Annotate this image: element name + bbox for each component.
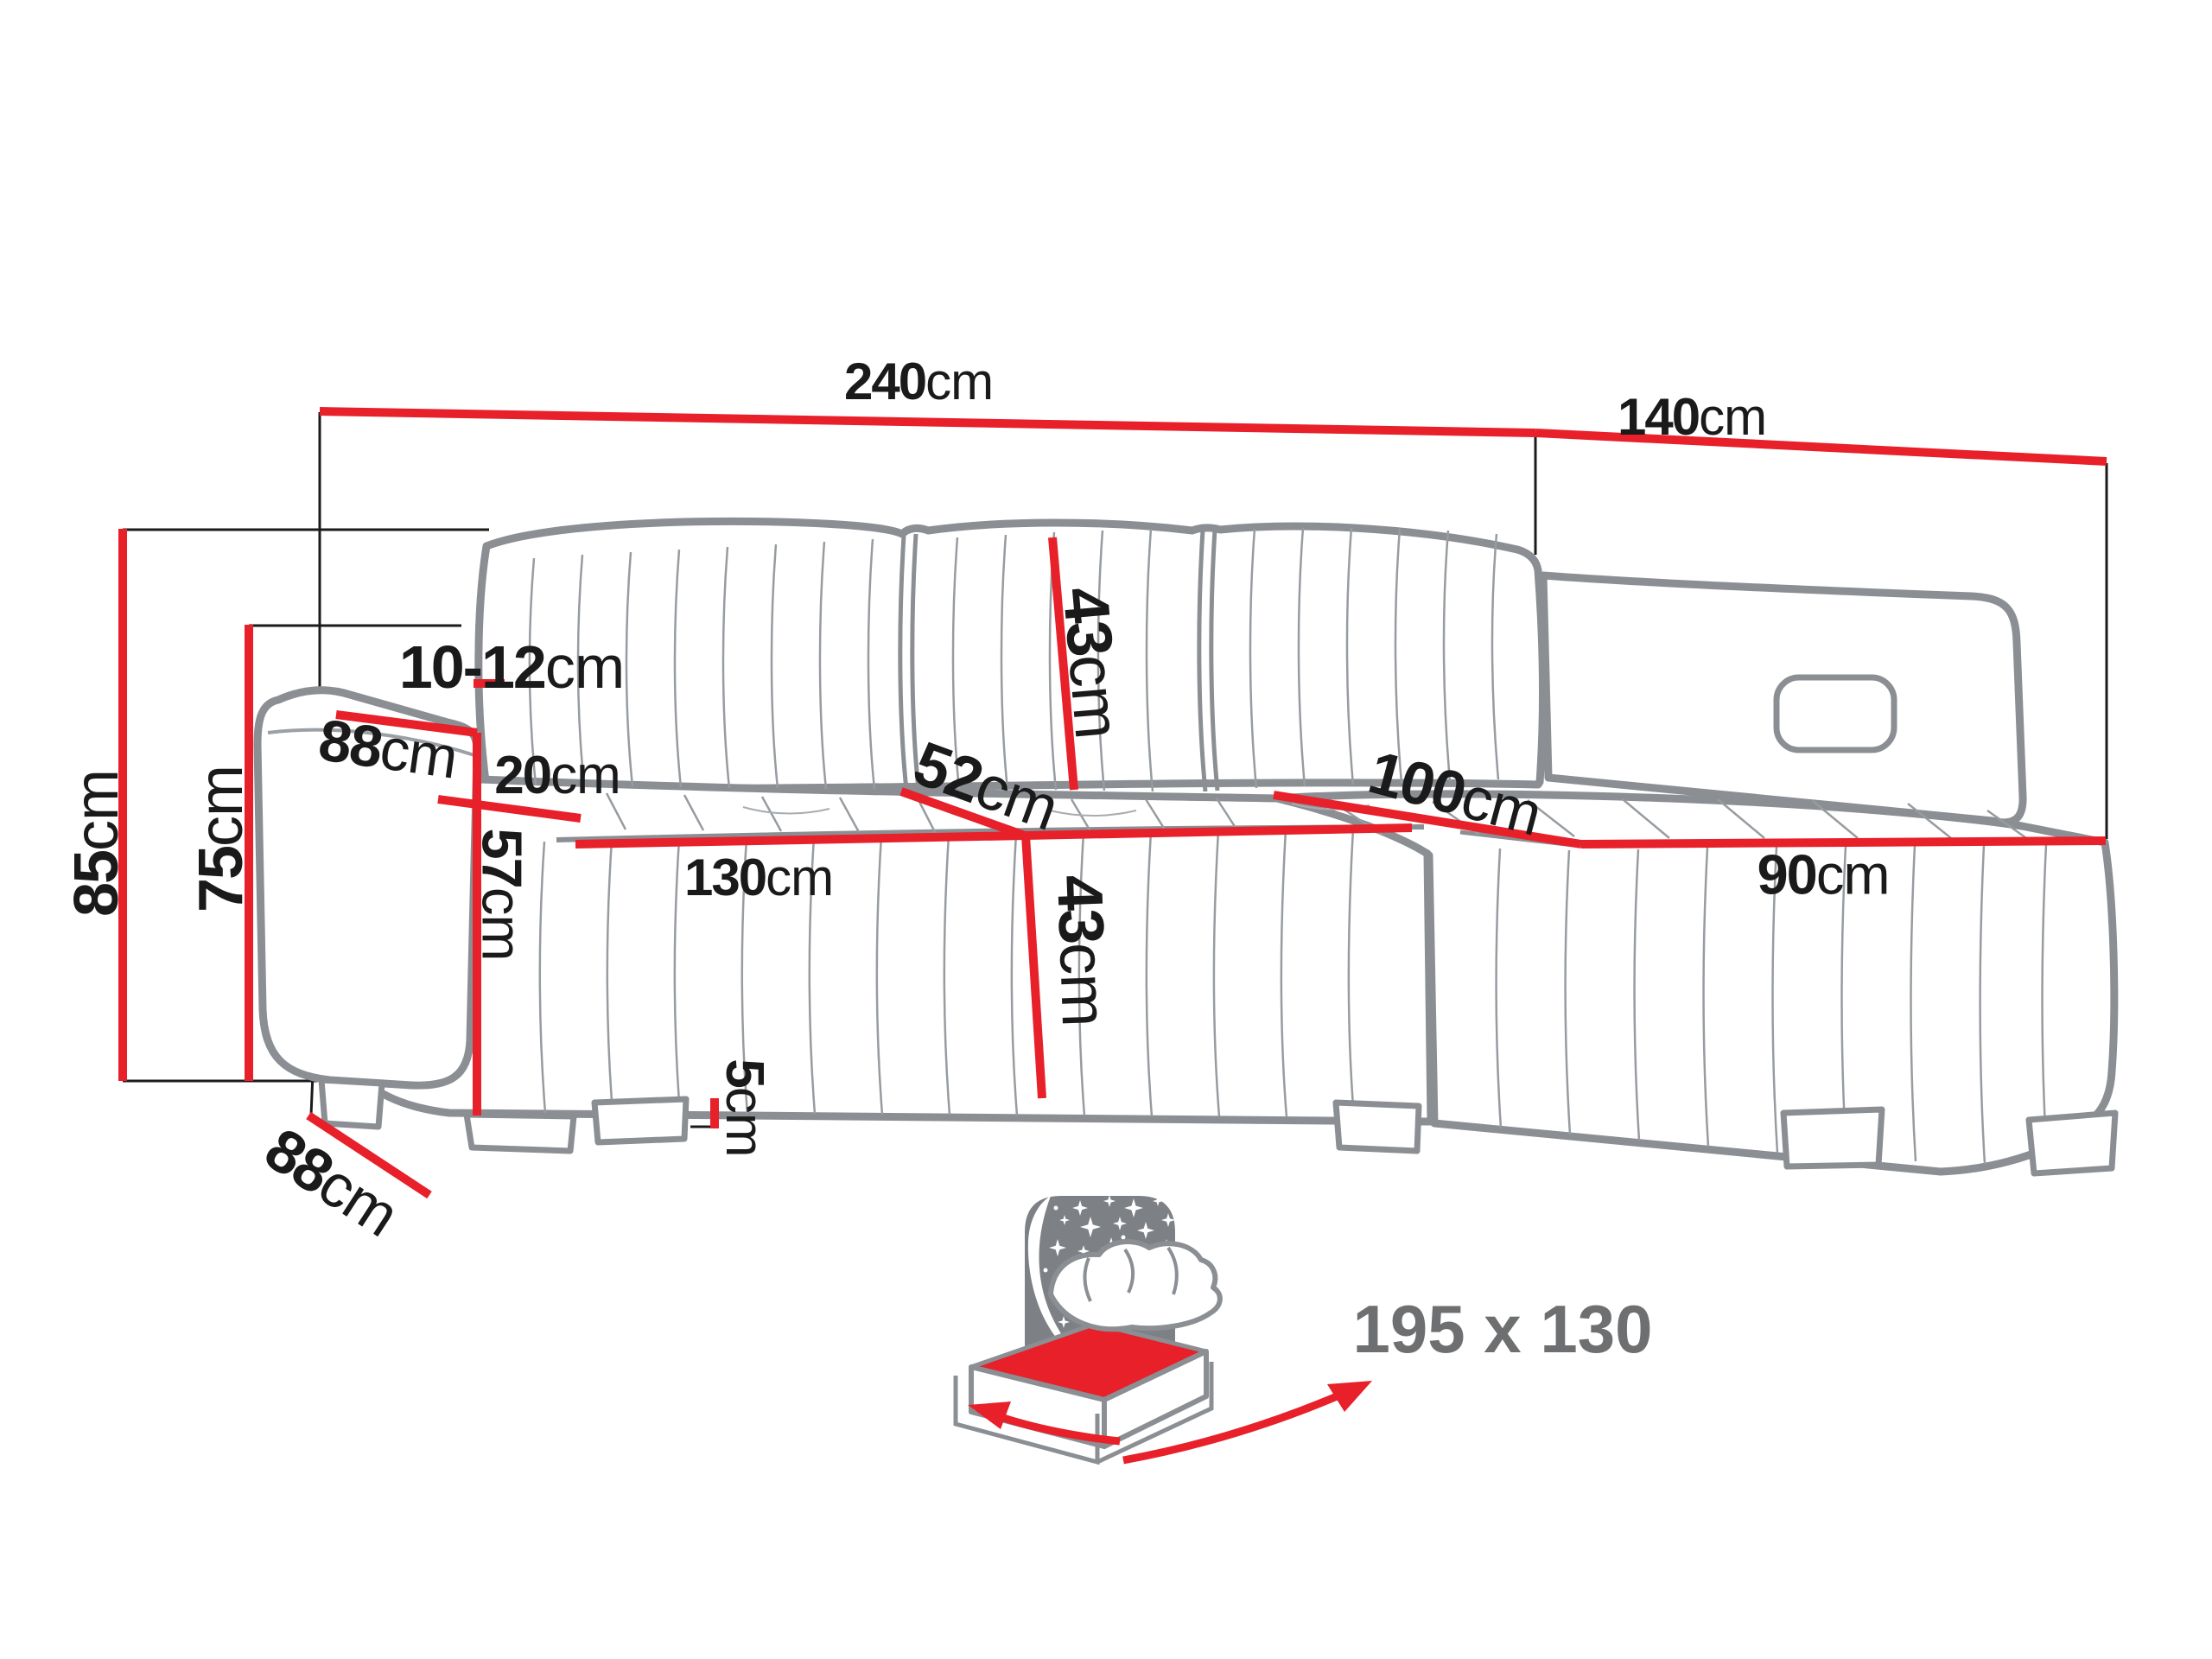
sleeping-function-icon bbox=[956, 1195, 1372, 1462]
leg bbox=[467, 1115, 574, 1151]
dim-label-armrest-top-width: 10-12cm bbox=[399, 637, 624, 697]
leg bbox=[1783, 1109, 1882, 1166]
dim-label-backrest-cushion-height: 43cm bbox=[1053, 585, 1130, 741]
dim-label-seat-height: 43cm bbox=[1047, 874, 1116, 1027]
dim-label-total-height: 85cm bbox=[66, 770, 128, 917]
dim-label-backrest-height: 75cm bbox=[190, 766, 252, 912]
chaise-headrest-pad bbox=[1777, 677, 1894, 750]
diagram-graphics bbox=[0, 0, 2212, 1659]
dim-label-armrest-height: 57cm bbox=[474, 829, 531, 961]
bed-size-label: 195 x 130 bbox=[1352, 1295, 1652, 1363]
dim-label-armrest-width: 20cm bbox=[494, 749, 620, 803]
dim-label-leg-height: 5cm bbox=[717, 1058, 771, 1156]
leg bbox=[2029, 1113, 2115, 1173]
dim-line-total-width bbox=[320, 411, 1535, 433]
leg bbox=[321, 1080, 382, 1127]
dim-label-chaise-front-width: 90cm bbox=[1758, 847, 1890, 903]
dim-label-chaise-depth: 140cm bbox=[1618, 391, 1766, 443]
leg bbox=[1336, 1103, 1419, 1151]
sofa-dimension-diagram: 240cm 140cm 85cm 75cm 10-12cm 88cm 20cm … bbox=[0, 0, 2212, 1659]
dim-label-total-width: 240cm bbox=[844, 356, 993, 408]
dim-label-seat-front-width: 130cm bbox=[684, 852, 833, 904]
leg bbox=[594, 1099, 686, 1142]
